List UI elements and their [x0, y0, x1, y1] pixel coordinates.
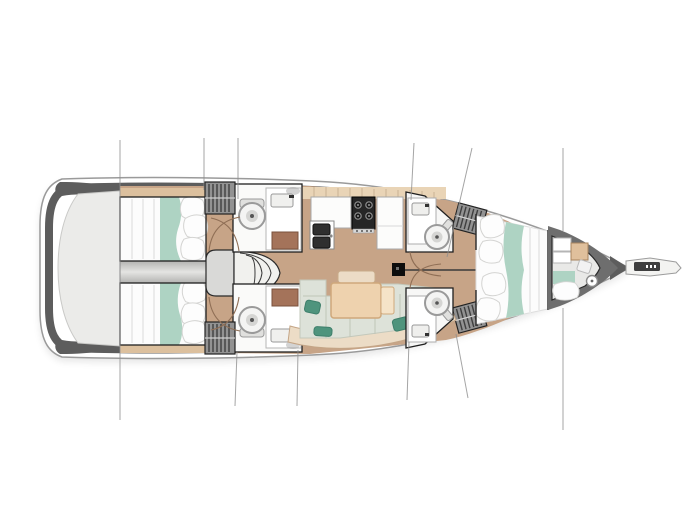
bow-crew-cabin	[548, 226, 618, 310]
companionway-landing	[206, 250, 234, 296]
galley-right-counter	[377, 197, 403, 249]
yacht-deck-plan-svg	[0, 0, 690, 518]
teal-pillow-2	[314, 326, 333, 336]
saloon-table-flap	[381, 287, 394, 314]
starboard-aft-toilet-drain	[250, 318, 254, 322]
port-aft-toilet-drain	[250, 214, 254, 218]
forward-cabins	[474, 212, 548, 326]
bow-berth-pillow	[551, 281, 580, 301]
bowsprit-marks	[646, 265, 656, 268]
yacht-floor-plan	[0, 0, 690, 518]
saloon-bench-top	[338, 271, 375, 283]
mast-highlight	[396, 267, 399, 270]
wood-cabinet-bottom	[272, 289, 298, 306]
stay-line	[407, 342, 409, 400]
bow-shelf-2	[553, 252, 571, 263]
galley-stove	[352, 197, 375, 229]
galley-sink-2	[313, 237, 330, 248]
stay-line	[456, 334, 468, 398]
port-aft-faucet	[289, 195, 294, 198]
aft-shelf-bottom	[120, 345, 206, 353]
galley-faucet	[329, 234, 332, 237]
saloon-table	[331, 283, 381, 318]
port-forward-toilet-drain	[435, 235, 439, 239]
bow-cabinet	[571, 243, 588, 260]
transom-swim-platform	[58, 191, 120, 346]
bow-shelf-1	[553, 238, 571, 251]
wood-cabinet-top	[272, 232, 298, 249]
aft-cabins	[120, 196, 209, 345]
port-forward-faucet	[425, 204, 429, 207]
aft-shelf-top	[120, 188, 206, 197]
galley-sink-1	[313, 224, 330, 235]
bow-toilet-drain	[591, 280, 594, 283]
starboard-forward-faucet	[425, 333, 429, 336]
port-aft-locker	[205, 182, 235, 214]
swim-platform	[58, 191, 120, 346]
bowsprit	[626, 258, 681, 276]
starboard-forward-toilet-drain	[435, 301, 439, 305]
engine-compartment-divider	[120, 261, 206, 283]
teal-pillow-1	[304, 300, 321, 315]
